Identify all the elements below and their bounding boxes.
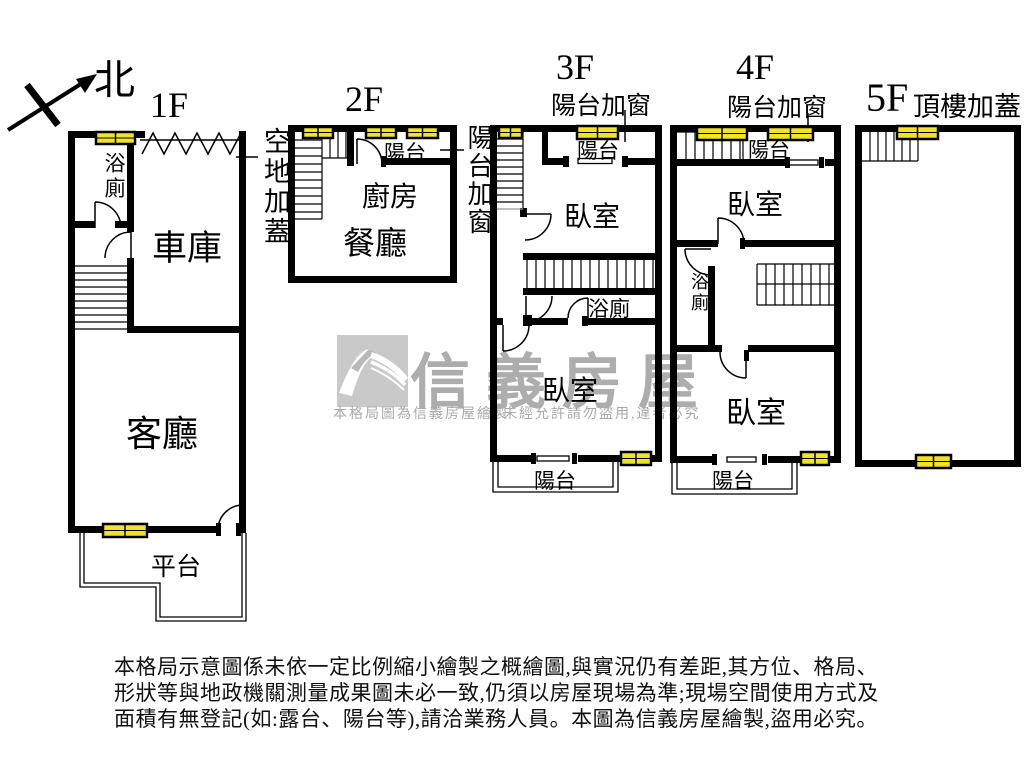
room-3f-bath-label: 浴廁 [588, 293, 630, 323]
north-label: 北 [94, 46, 135, 106]
note-1f-open-land-label: 空地加蓋 [256, 127, 295, 247]
floor-3f-label: 3F [556, 46, 594, 88]
room-1f-living-label: 客廳 [126, 405, 198, 457]
floor-2f-label: 2F [345, 78, 383, 120]
room-4f-balcony-top-label: 陽台 [748, 134, 790, 164]
room-4f-balcony-bottom-label: 陽台 [712, 465, 754, 495]
room-1f-platform-label: 平台 [151, 547, 201, 583]
floor-5f-subtitle: 頂樓加蓋 [913, 85, 1021, 124]
room-2f-kitchen-label: 廚房 [362, 175, 418, 215]
room-4f-bedroom-top-label: 臥室 [727, 183, 783, 223]
room-4f-bedroom-bottom-label: 臥室 [726, 388, 786, 432]
room-3f-balcony-bottom-label: 陽台 [534, 465, 576, 495]
room-1f-bath-label: 浴廁 [99, 152, 129, 202]
room-2f-balcony-label: 陽台 [384, 137, 426, 167]
note-2f-balcony-window-label: 陽台加窗 [460, 124, 497, 236]
floor-4f-subtitle: 陽台加窗 [727, 88, 827, 124]
floor-1f-label: 1F [150, 84, 188, 126]
floor-3f-subtitle: 陽台加窗 [551, 86, 651, 122]
room-3f-bedroom-top-label: 臥室 [564, 195, 620, 235]
floor-5f-label: 5F [866, 74, 908, 121]
room-4f-bath-label: 浴廁 [686, 272, 712, 314]
room-2f-dining-label: 餐廳 [343, 218, 407, 264]
disclaimer-line-3: 面積有無登記(如:露台、陽台等),請洽業務人員。本圖為信義房屋繪製,盜用必究。 [114, 703, 878, 733]
floor-4f-label: 4F [736, 46, 774, 88]
label-layer: 北 1F 浴廁 車庫 空地加蓋 客廳 平台 2F 陽台 廚房 餐廳 陽台加窗 3… [0, 0, 1024, 768]
room-1f-garage-label: 車庫 [152, 220, 222, 271]
room-3f-bedroom-bottom-label: 臥室 [542, 369, 598, 409]
floor-plan-page: 信義房屋 本格局圖為信義房屋繪製 未經允許請勿盜用,違者必究 [0, 0, 1024, 768]
room-3f-balcony-top-label: 陽台 [577, 135, 619, 165]
